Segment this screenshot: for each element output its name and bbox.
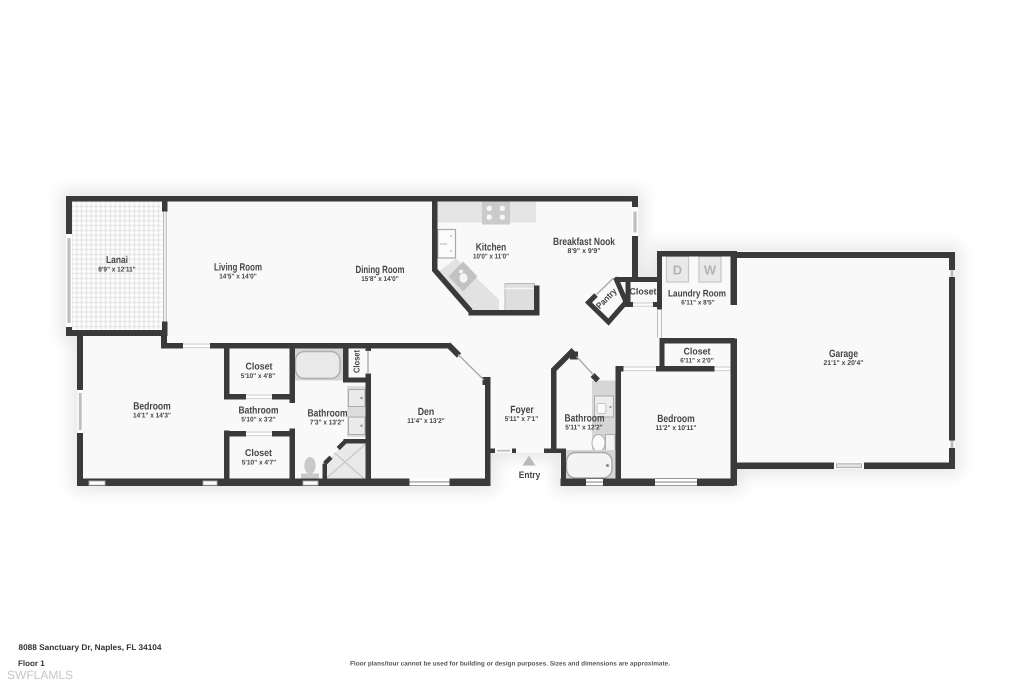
svg-text:Foyer: Foyer <box>510 404 534 416</box>
svg-text:Floor plans/tour cannot be use: Floor plans/tour cannot be used for buil… <box>350 661 670 668</box>
svg-text:21'1" x 20'4": 21'1" x 20'4" <box>824 360 864 367</box>
svg-text:10'0" x 11'0": 10'0" x 11'0" <box>473 254 509 261</box>
svg-text:6'11" x 8'5": 6'11" x 8'5" <box>681 300 715 307</box>
svg-text:Lanai: Lanai <box>106 255 128 266</box>
svg-text:8088 Sanctuary Dr, Naples, FL: 8088 Sanctuary Dr, Naples, FL 34104 <box>19 643 162 652</box>
svg-text:Kitchen: Kitchen <box>476 242 507 254</box>
svg-text:Bedroom: Bedroom <box>133 401 171 413</box>
svg-text:D: D <box>673 263 682 278</box>
svg-text:5'11" x 12'2": 5'11" x 12'2" <box>565 425 603 432</box>
svg-text:15'8" x 14'0": 15'8" x 14'0" <box>361 276 399 283</box>
svg-text:Den: Den <box>418 406 435 418</box>
svg-text:Closet: Closet <box>684 347 712 358</box>
svg-text:Entry: Entry <box>519 470 541 481</box>
svg-text:5'10" x 4'8": 5'10" x 4'8" <box>241 373 276 380</box>
svg-text:6'11" x 2'0": 6'11" x 2'0" <box>680 358 714 365</box>
svg-text:Laundry Room: Laundry Room <box>668 289 726 300</box>
svg-text:Living Room: Living Room <box>214 262 262 274</box>
svg-text:Bathroom: Bathroom <box>565 413 605 425</box>
svg-text:Closet: Closet <box>246 362 274 373</box>
svg-text:Closet: Closet <box>630 287 657 297</box>
svg-text:11'2" x 10'11": 11'2" x 10'11" <box>656 425 697 432</box>
svg-text:Garage: Garage <box>829 348 858 360</box>
svg-text:5'10" x 3'2": 5'10" x 3'2" <box>241 417 276 424</box>
svg-text:Closet: Closet <box>245 448 273 459</box>
svg-text:W: W <box>704 263 717 278</box>
svg-text:Dining Room: Dining Room <box>356 264 405 276</box>
svg-text:Breakfast Nook: Breakfast Nook <box>553 236 615 248</box>
svg-text:Bathroom: Bathroom <box>308 408 348 420</box>
svg-text:5'11" x 7'1": 5'11" x 7'1" <box>505 416 539 423</box>
svg-text:14'1" x 14'3": 14'1" x 14'3" <box>133 413 171 420</box>
svg-text:7'3" x 13'2": 7'3" x 13'2" <box>310 420 345 427</box>
svg-text:8'9" x 12'11": 8'9" x 12'11" <box>98 267 136 274</box>
svg-text:5'10" x 4'7": 5'10" x 4'7" <box>242 460 277 467</box>
svg-text:11'4" x 13'2": 11'4" x 13'2" <box>407 418 445 425</box>
svg-text:Bathroom: Bathroom <box>239 406 279 417</box>
svg-text:SWFLAMLS: SWFLAMLS <box>7 668 73 682</box>
svg-text:8'9" x 9'9": 8'9" x 9'9" <box>568 248 601 255</box>
svg-text:14'5" x 14'0": 14'5" x 14'0" <box>219 274 257 281</box>
svg-text:Closet: Closet <box>352 350 362 373</box>
svg-text:Floor 1: Floor 1 <box>18 659 45 668</box>
svg-text:Bedroom: Bedroom <box>657 413 695 425</box>
